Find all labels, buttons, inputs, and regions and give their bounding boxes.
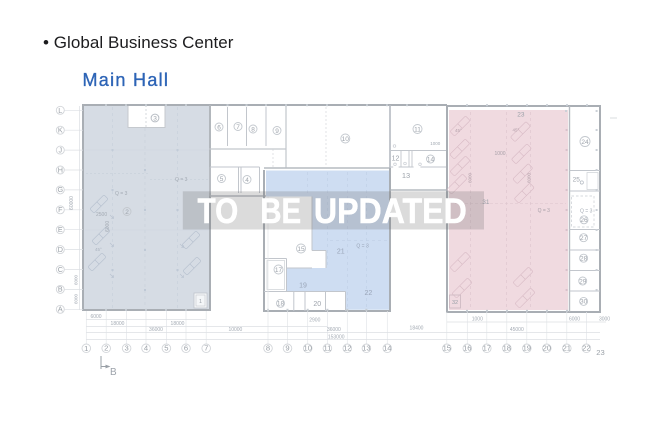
svg-text:F: F [58,205,63,214]
svg-text:6000: 6000 [74,293,79,304]
svg-text:19: 19 [523,344,531,353]
svg-text:B: B [110,367,117,378]
svg-text:1: 1 [84,344,88,353]
svg-text:9: 9 [275,128,279,135]
svg-text:6000: 6000 [90,314,101,320]
svg-text:H: H [58,165,63,174]
svg-text:5: 5 [164,344,168,353]
svg-text:Q = 3: Q = 3 [175,177,188,183]
svg-text:Q = 3: Q = 3 [115,191,128,197]
svg-text:6000: 6000 [74,274,79,285]
svg-text:6: 6 [184,344,188,353]
svg-text:22: 22 [365,290,373,297]
svg-text:22: 22 [582,344,590,353]
svg-text:UPDATED: UPDATED [314,191,467,231]
svg-text:24: 24 [581,139,589,146]
svg-text:14: 14 [383,344,391,353]
svg-text:E: E [58,225,63,234]
svg-text:10: 10 [342,136,350,143]
svg-text:18000: 18000 [111,321,125,327]
svg-text:60000: 60000 [69,196,75,210]
svg-text:6000: 6000 [527,172,532,183]
svg-text:16: 16 [463,344,471,353]
svg-text:2: 2 [104,344,108,353]
svg-text:23: 23 [517,112,525,119]
svg-text:8: 8 [251,126,255,133]
svg-text:6000: 6000 [105,221,111,232]
svg-text:6: 6 [217,124,221,131]
svg-text:3: 3 [124,344,128,353]
svg-text:1000: 1000 [472,317,483,323]
svg-text:Q = 3: Q = 3 [356,243,369,249]
svg-text:19: 19 [299,283,307,290]
svg-text:29: 29 [579,278,587,285]
svg-text:BE: BE [260,191,301,231]
svg-text:32: 32 [452,300,458,306]
svg-text:45°: 45° [513,128,520,133]
svg-text:36000: 36000 [149,327,163,333]
svg-text:Q = 3: Q = 3 [580,209,593,215]
svg-text:18: 18 [503,344,511,353]
svg-text:45°: 45° [455,128,462,133]
svg-text:K: K [58,126,63,135]
svg-text:J: J [59,145,63,154]
svg-text:2900: 2900 [309,318,320,324]
svg-text:TO: TO [198,191,239,231]
svg-text:20: 20 [543,344,551,353]
svg-text:10000: 10000 [228,327,242,333]
svg-text:18400: 18400 [410,326,424,332]
svg-text:153000: 153000 [328,335,345,341]
svg-text:14: 14 [427,156,435,163]
svg-text:G: G [58,185,64,194]
svg-text:7: 7 [204,344,208,353]
svg-text:7: 7 [236,124,240,131]
svg-text:10: 10 [303,344,311,353]
svg-text:1000: 1000 [430,141,441,146]
svg-text:4: 4 [245,177,249,184]
svg-text:18: 18 [277,301,285,308]
svg-text:45°: 45° [95,247,102,252]
svg-text:15: 15 [443,344,451,353]
svg-text:L: L [58,106,62,115]
svg-text:17: 17 [275,267,283,274]
svg-text:11: 11 [414,126,421,133]
svg-text:Q = 3: Q = 3 [538,208,551,214]
svg-text:12: 12 [343,344,351,353]
svg-text:1000: 1000 [494,151,505,157]
svg-text:C: C [58,265,63,274]
svg-text:27: 27 [580,235,588,242]
svg-text:2500: 2500 [96,212,107,218]
svg-text:6000: 6000 [569,317,580,323]
svg-text:6000: 6000 [467,172,472,183]
svg-text:4: 4 [144,344,148,353]
svg-text:21: 21 [563,344,571,353]
svg-text:1: 1 [199,299,202,305]
svg-text:21: 21 [337,248,345,255]
svg-text:15: 15 [297,246,305,253]
svg-text:11: 11 [323,344,331,353]
svg-text:13: 13 [362,344,370,353]
svg-text:45000: 45000 [510,327,524,333]
svg-text:25: 25 [573,176,581,183]
svg-text:D: D [58,245,63,254]
svg-text:13: 13 [402,171,410,180]
svg-text:8: 8 [266,344,270,353]
svg-text:28: 28 [580,256,588,263]
svg-text:17: 17 [483,344,491,353]
svg-text:2: 2 [125,209,129,216]
svg-text:36000: 36000 [327,327,341,333]
svg-text:3000: 3000 [599,317,610,323]
svg-text:5: 5 [220,176,224,183]
svg-text:20: 20 [313,301,321,308]
svg-text:A: A [58,305,63,314]
svg-text:B: B [58,285,63,294]
svg-text:18000: 18000 [171,321,185,327]
svg-text:12: 12 [392,155,400,162]
svg-text:3: 3 [153,115,157,122]
svg-text:9: 9 [285,344,289,353]
svg-text:23: 23 [596,348,604,357]
svg-text:30: 30 [580,299,588,306]
svg-text:26: 26 [580,217,588,224]
